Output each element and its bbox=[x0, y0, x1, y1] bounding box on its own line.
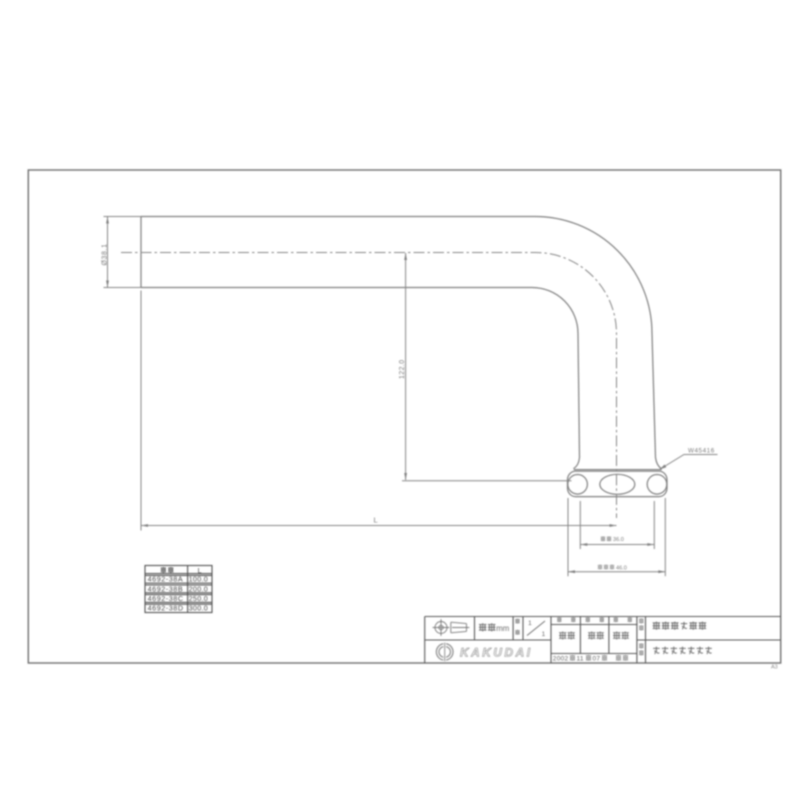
svg-text:4692-38C: 4692-38C bbox=[148, 594, 184, 603]
svg-text:4692-38D: 4692-38D bbox=[148, 604, 184, 613]
svg-text:11: 11 bbox=[577, 656, 584, 663]
svg-text:200.0: 200.0 bbox=[189, 584, 209, 593]
svg-text:4692-38B: 4692-38B bbox=[148, 584, 184, 593]
svg-text:4692-38A: 4692-38A bbox=[148, 575, 184, 584]
svg-text:KAKUDAI: KAKUDAI bbox=[460, 646, 533, 660]
svg-text:122.0: 122.0 bbox=[399, 359, 406, 379]
svg-text:Ø38.1: Ø38.1 bbox=[101, 243, 108, 265]
svg-text:100.0: 100.0 bbox=[189, 575, 209, 584]
svg-text:07: 07 bbox=[593, 656, 601, 663]
svg-text:1: 1 bbox=[542, 631, 546, 638]
svg-text:1: 1 bbox=[528, 620, 532, 627]
svg-text:L: L bbox=[374, 516, 378, 525]
svg-text:250.0: 250.0 bbox=[189, 594, 209, 603]
svg-text:W45416: W45416 bbox=[688, 447, 715, 454]
svg-text:A3: A3 bbox=[771, 665, 778, 671]
svg-text:36.0: 36.0 bbox=[613, 537, 624, 543]
svg-text:46.0: 46.0 bbox=[616, 566, 627, 572]
svg-text:mm: mm bbox=[496, 624, 509, 633]
svg-text:2002: 2002 bbox=[553, 656, 569, 663]
svg-text:300.0: 300.0 bbox=[189, 604, 209, 613]
